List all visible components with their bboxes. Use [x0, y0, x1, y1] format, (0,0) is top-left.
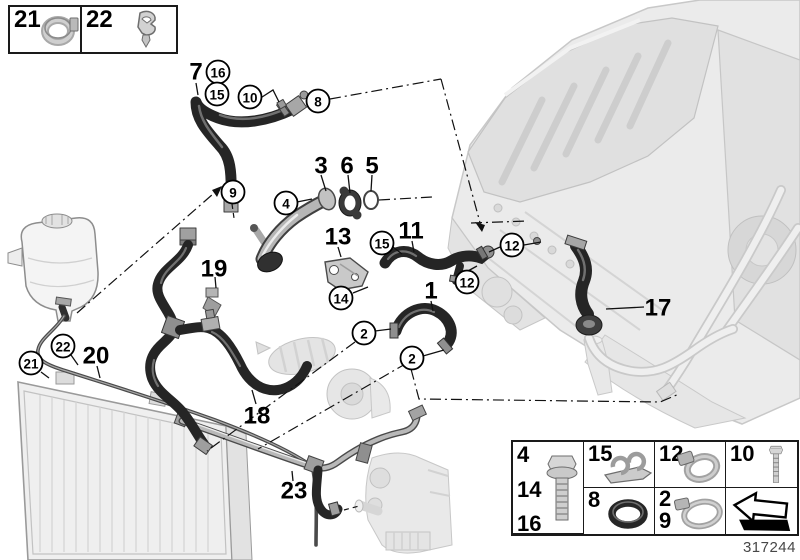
thermostat-housing-illustration	[355, 453, 452, 553]
legend-item-arrow[interactable]	[726, 488, 797, 534]
callout-22[interactable]: 22	[52, 335, 75, 358]
svg-text:20: 20	[83, 343, 110, 370]
expansion-rivet-icon	[126, 9, 166, 55]
callout-3[interactable]: 3	[314, 153, 327, 180]
svg-text:19: 19	[201, 256, 228, 283]
callout-18[interactable]: 18	[244, 403, 271, 430]
svg-text:12: 12	[504, 239, 519, 254]
expansion-tank-illustration	[8, 214, 98, 321]
callout-12[interactable]: 12	[456, 271, 479, 294]
flange-bolt-icon	[545, 450, 579, 535]
engine-illustration	[448, 0, 800, 428]
legend-9-label: 9	[659, 510, 671, 532]
svg-text:18: 18	[244, 403, 271, 430]
legend-21-label: 21	[14, 7, 41, 32]
callout-20[interactable]: 20	[83, 343, 110, 370]
callout-13[interactable]: 13	[325, 224, 352, 251]
svg-text:2: 2	[360, 327, 368, 342]
legend-22-label: 22	[86, 7, 113, 32]
svg-text:5: 5	[365, 153, 378, 180]
legend-2-label: 2	[659, 488, 671, 510]
o-ring-icon	[602, 494, 652, 537]
svg-text:7: 7	[189, 59, 202, 86]
callout-17[interactable]: 17	[645, 295, 672, 322]
callout-14[interactable]: 14	[330, 287, 353, 310]
legend-item-4-14-16[interactable]: 4 14 16	[513, 442, 584, 534]
legend-4-label: 4	[517, 444, 529, 466]
svg-text:11: 11	[398, 218, 423, 245]
legend-14-label: 14	[517, 479, 541, 501]
hose-clamp-small-icon	[674, 444, 724, 491]
callout-23[interactable]: 23	[281, 478, 308, 505]
callout-15[interactable]: 15	[206, 83, 229, 106]
callout-1[interactable]: 1	[424, 278, 437, 305]
legend-10-label: 10	[730, 443, 754, 465]
hex-bolt-icon	[763, 444, 789, 493]
svg-text:8: 8	[314, 95, 322, 110]
hose-clamp-icon	[40, 11, 80, 54]
svg-text:21: 21	[23, 357, 39, 372]
legend-item-2-9[interactable]: 2 9	[655, 488, 726, 534]
diagram-part-number: 317244	[700, 539, 796, 556]
radiator-illustration	[18, 372, 252, 560]
svg-text:10: 10	[242, 91, 257, 106]
callout-2[interactable]: 2	[401, 347, 424, 370]
svg-text:3: 3	[314, 153, 327, 180]
line-clip-icon	[603, 447, 653, 490]
svg-text:2: 2	[408, 352, 416, 367]
callout-7[interactable]: 7	[189, 59, 202, 86]
callout-4[interactable]: 4	[275, 192, 298, 215]
hose-1	[390, 308, 453, 353]
callout-5[interactable]: 5	[365, 153, 378, 180]
callout-9[interactable]: 9	[222, 181, 245, 204]
svg-text:13: 13	[325, 224, 352, 251]
hose-clamp-large-icon	[673, 491, 725, 538]
svg-text:9: 9	[229, 186, 237, 201]
svg-text:14: 14	[333, 292, 349, 307]
bracket-13	[325, 258, 368, 290]
svg-text:4: 4	[282, 197, 290, 212]
legend-item-22[interactable]: 22	[82, 7, 176, 52]
callout-2[interactable]: 2	[353, 322, 376, 345]
svg-text:6: 6	[340, 153, 353, 180]
svg-text:12: 12	[459, 276, 474, 291]
legend-item-10[interactable]: 10	[726, 442, 797, 488]
o-ring-5	[364, 191, 378, 209]
legend-item-12[interactable]: 12	[655, 442, 726, 488]
fasteners-legend-table: 15 4 14 16 12	[511, 440, 799, 536]
callout-21[interactable]: 21	[20, 352, 43, 375]
callout-11[interactable]: 11	[398, 218, 423, 245]
svg-text:17: 17	[645, 295, 672, 322]
svg-text:15: 15	[374, 237, 390, 252]
legend-item-15[interactable]: 15	[584, 442, 655, 488]
svg-text:1: 1	[424, 278, 437, 305]
svg-text:16: 16	[210, 66, 226, 81]
svg-text:22: 22	[55, 340, 70, 355]
callout-6[interactable]: 6	[340, 153, 353, 180]
legend-8-label: 8	[588, 489, 600, 511]
callout-10[interactable]: 10	[239, 86, 262, 109]
legend-item-8[interactable]: 8	[584, 488, 655, 534]
svg-text:15: 15	[209, 88, 225, 103]
svg-text:23: 23	[281, 478, 308, 505]
legend-16-label: 16	[517, 513, 541, 535]
parts-diagram-page: 1615108941512121422222173651311191201817…	[0, 0, 800, 560]
callout-15[interactable]: 15	[371, 232, 394, 255]
direction-arrow-icon	[730, 490, 794, 539]
clamp-legend-box: 21 22	[8, 5, 178, 54]
callout-19[interactable]: 19	[201, 256, 228, 283]
legend-item-21[interactable]: 21	[10, 7, 82, 52]
water-pump-illustration	[327, 369, 390, 419]
callout-8[interactable]: 8	[307, 90, 330, 113]
callout-12[interactable]: 12	[501, 234, 524, 257]
callout-16[interactable]: 16	[207, 61, 230, 84]
